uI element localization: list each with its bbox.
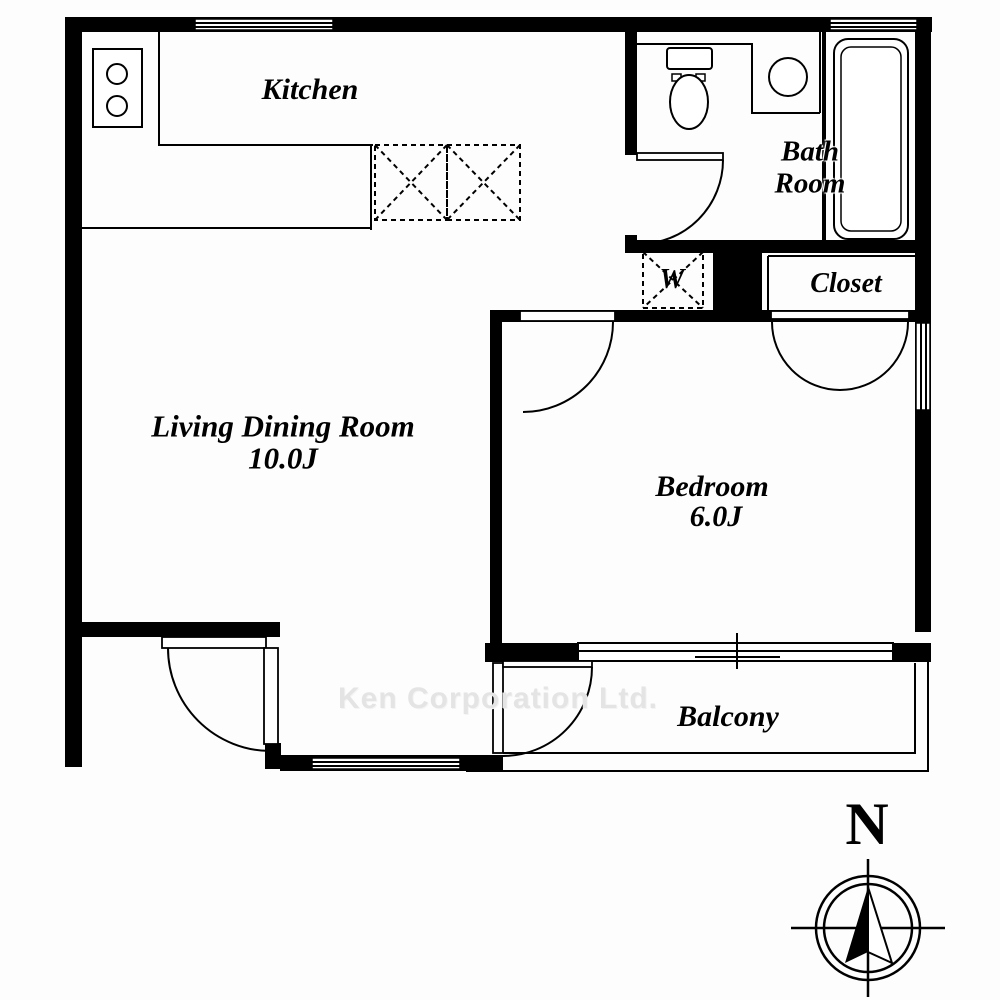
washer-space-label: W — [660, 266, 685, 294]
wall-bedroom-bottom-left — [485, 643, 578, 662]
bathroom-label-line2: Room — [775, 170, 846, 199]
wall-living-bottom — [82, 622, 280, 637]
wall-entrance-hinge-chunk — [265, 743, 281, 769]
balcony-label: Balcony — [677, 702, 779, 732]
closet-label: Closet — [810, 270, 882, 298]
compass-needle-light — [868, 887, 892, 963]
compass-north-label: N — [845, 794, 888, 854]
entrance-door-open-leaf — [162, 637, 266, 648]
wall-bath-left-upper — [625, 32, 637, 155]
toilet-icon — [667, 48, 712, 129]
bedroom-size: 6.0J — [690, 502, 743, 532]
entrance-door-leaf — [264, 648, 278, 744]
closet-door-band — [771, 311, 909, 319]
washroom-door-leaf — [637, 153, 723, 160]
closet-door-arc-left — [772, 322, 840, 390]
wall-left — [65, 17, 82, 767]
closet-door-arc-right — [840, 322, 908, 390]
bathtub-icon — [834, 39, 908, 239]
kitchen-label: Kitchen — [262, 75, 359, 105]
compass-needle-dark — [845, 887, 868, 963]
bedroom-label: Bedroom — [655, 472, 768, 502]
compass-icon — [791, 859, 945, 997]
bedroom-door-arc — [523, 322, 613, 412]
wall-bedroom-left — [490, 310, 502, 650]
watermark: Ken Corporation Ltd. — [338, 682, 658, 716]
balcony-door-leaf — [503, 661, 592, 667]
entrance-door-arc — [168, 648, 271, 751]
kitchen-window — [195, 19, 333, 30]
corridor-window — [312, 758, 460, 769]
living-dining-label: Living Dining Room — [151, 411, 415, 442]
floor-plan: Kitchen Living Dining Room 10.0J Bedroom… — [0, 0, 1000, 1000]
bedroom-side-window — [916, 323, 930, 410]
bathroom-label-line1: Bath — [781, 138, 839, 167]
refrigerator-space-dashed-boxes — [375, 145, 520, 220]
bath-window — [830, 19, 917, 30]
washbasin-icon — [769, 58, 807, 96]
washroom-door-arc — [639, 160, 723, 244]
bedroom-balcony-sliding-window — [578, 633, 893, 669]
wall-bedroom-bottom-right — [893, 643, 931, 662]
living-dining-size: 10.0J — [248, 443, 318, 474]
bedroom-door-leaf — [520, 311, 615, 321]
wall-washer-closet-chunk — [713, 253, 762, 312]
stove-icon — [93, 49, 142, 127]
